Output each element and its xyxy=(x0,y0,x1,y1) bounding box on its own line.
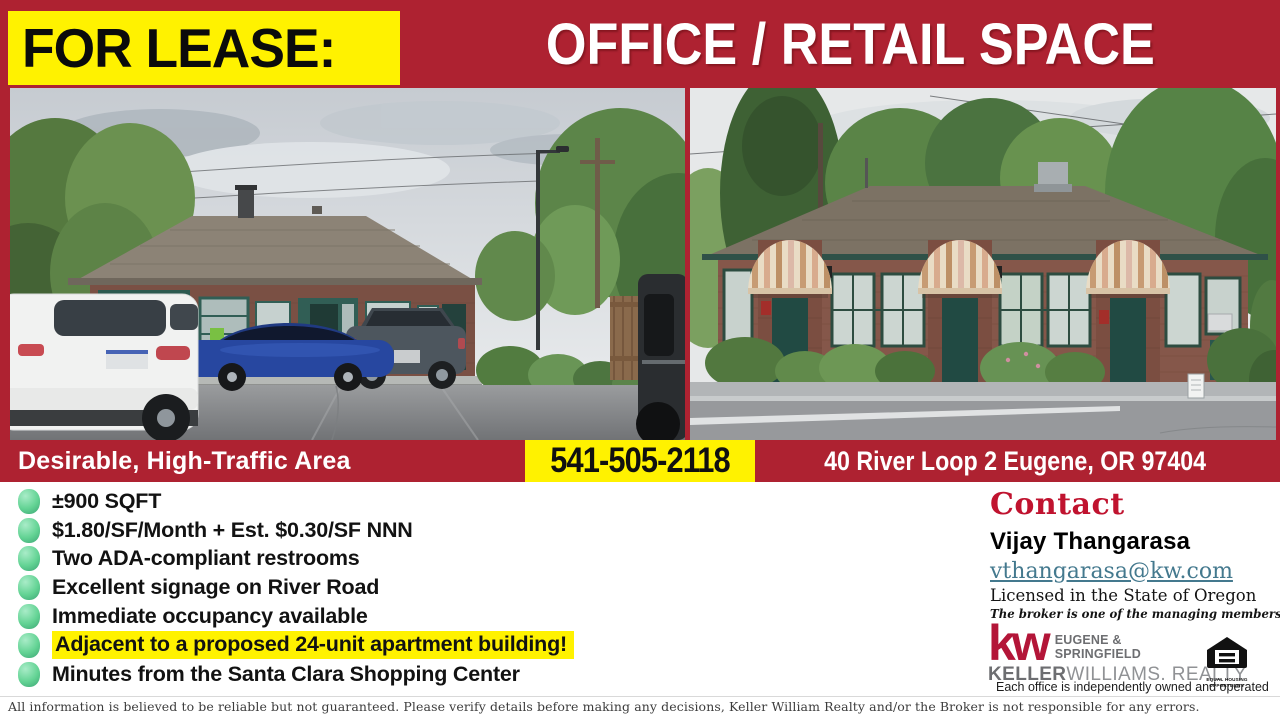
feature-text: Excellent signage on River Road xyxy=(52,575,379,600)
bullet-icon xyxy=(18,489,40,514)
for-lease-label: FOR LEASE: xyxy=(22,16,335,80)
kw-region-line2: SPRINGFIELD xyxy=(1055,647,1141,661)
bullet-icon xyxy=(18,633,40,658)
phone-number: 541-505-2118 xyxy=(550,441,730,481)
info-bar: Desirable, High-Traffic Area 541-505-211… xyxy=(0,440,1280,482)
feature-row: Immediate occupancy available xyxy=(18,602,574,631)
property-address: 40 River Loop 2 Eugene, OR 97404 xyxy=(824,446,1206,477)
yard-sign xyxy=(1188,374,1204,398)
license-text: Licensed in the State of Oregon xyxy=(990,586,1278,605)
feature-list: ±900 SQFT $1.80/SF/Month + Est. $0.30/SF… xyxy=(18,487,574,689)
feature-text: Immediate occupancy available xyxy=(52,604,368,629)
feature-row: Minutes from the Santa Clara Shopping Ce… xyxy=(18,660,574,689)
agent-email-link[interactable]: vthangarasa@kw.com xyxy=(990,559,1233,584)
street-view-illustration xyxy=(690,88,1276,440)
bullet-icon xyxy=(18,575,40,600)
contact-heading: Contact xyxy=(990,489,1278,521)
top-banner: FOR LEASE: OFFICE / RETAIL SPACE xyxy=(0,0,1280,88)
kw-region-line1: EUGENE & xyxy=(1055,633,1122,647)
photo-strip: FILLING STATION OPEN xyxy=(0,88,1280,440)
photo-parking-lot: FILLING STATION OPEN xyxy=(10,88,685,440)
flyer: FOR LEASE: OFFICE / RETAIL SPACE xyxy=(0,0,1280,720)
agent-name: Vijay Thangarasa xyxy=(990,528,1278,556)
feature-row: Adjacent to a proposed 24-unit apartment… xyxy=(18,631,574,660)
bullet-icon xyxy=(18,518,40,543)
white-suv xyxy=(10,294,198,440)
feature-row: ±900 SQFT xyxy=(18,487,574,516)
feature-row: Two ADA-compliant restrooms xyxy=(18,545,574,574)
feature-text: Minutes from the Santa Clara Shopping Ce… xyxy=(52,662,520,687)
for-lease-badge: FOR LEASE: xyxy=(8,11,400,85)
office-note: Each office is independently owned and o… xyxy=(996,680,1280,694)
disclaimer: All information is believed to be reliab… xyxy=(8,699,1278,714)
photo-street-view xyxy=(690,88,1276,440)
feature-row: Excellent signage on River Road xyxy=(18,573,574,602)
contact-section: Contact Vijay Thangarasa vthangarasa@kw.… xyxy=(990,489,1278,621)
kw-mark: kw xyxy=(988,624,1047,663)
equal-housing-icon xyxy=(1206,636,1248,672)
black-suv xyxy=(636,274,685,440)
feature-text: ±900 SQFT xyxy=(52,489,161,514)
footer-divider xyxy=(0,696,1280,697)
kw-region: EUGENE & SPRINGFIELD xyxy=(1055,624,1141,661)
page-title: OFFICE / RETAIL SPACE xyxy=(545,11,1154,78)
bullet-icon xyxy=(18,546,40,571)
banner-title-wrap: OFFICE / RETAIL SPACE xyxy=(430,0,1270,88)
feature-text: Adjacent to a proposed 24-unit apartment… xyxy=(52,631,574,659)
phone-badge: 541-505-2118 xyxy=(525,440,755,482)
address-wrap: 40 River Loop 2 Eugene, OR 97404 xyxy=(755,440,1276,482)
parking-lot-illustration: FILLING STATION OPEN xyxy=(10,88,685,440)
bullet-icon xyxy=(18,604,40,629)
feature-text: $1.80/SF/Month + Est. $0.30/SF NNN xyxy=(52,518,413,543)
feature-row: $1.80/SF/Month + Est. $0.30/SF NNN xyxy=(18,516,574,545)
tagline: Desirable, High-Traffic Area xyxy=(18,440,351,482)
feature-text: Two ADA-compliant restrooms xyxy=(52,546,360,571)
bullet-icon xyxy=(18,662,40,687)
